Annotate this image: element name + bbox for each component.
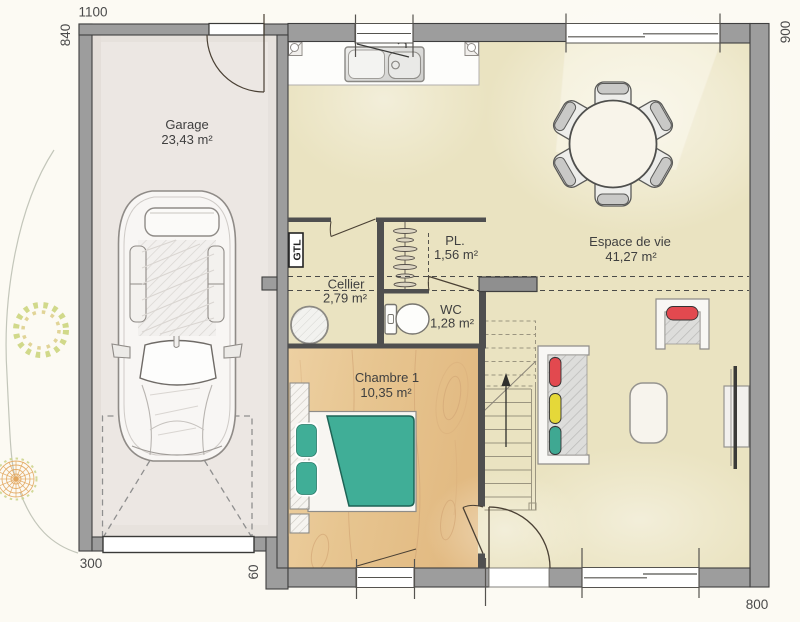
svg-text:23,43 m²: 23,43 m²	[161, 132, 213, 147]
svg-text:1100: 1100	[78, 5, 107, 20]
svg-text:41,27 m²: 41,27 m²	[605, 249, 657, 264]
svg-text:Cellier: Cellier	[328, 277, 366, 292]
svg-text:60: 60	[246, 564, 261, 579]
svg-text:2,79 m²: 2,79 m²	[323, 291, 368, 306]
svg-text:10,35 m²: 10,35 m²	[360, 385, 412, 400]
svg-text:300: 300	[80, 556, 103, 571]
svg-text:Chambre 1: Chambre 1	[355, 370, 419, 385]
svg-text:1,56 m²: 1,56 m²	[434, 247, 479, 262]
svg-text:Garage: Garage	[165, 117, 208, 132]
svg-text:900: 900	[778, 21, 793, 44]
svg-text:1,28 m²: 1,28 m²	[430, 316, 475, 331]
svg-text:GTL: GTL	[292, 239, 304, 261]
svg-text:PL.: PL.	[445, 233, 465, 248]
svg-text:Espace de vie: Espace de vie	[589, 234, 671, 249]
svg-text:800: 800	[746, 597, 769, 612]
svg-text:840: 840	[58, 24, 73, 47]
